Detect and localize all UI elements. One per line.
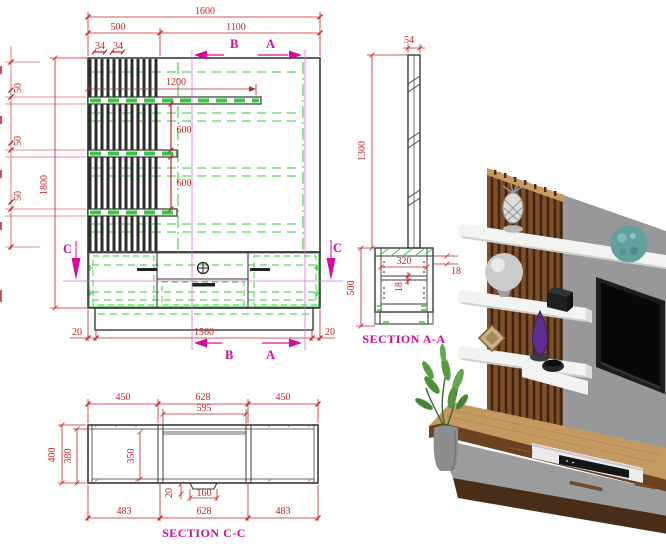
section-aa-title: SECTION A-A — [362, 332, 445, 346]
dim-320: 320 — [397, 256, 412, 267]
section-cc-title: SECTION C-C — [162, 526, 246, 540]
dim-50-c: 50 — [13, 191, 24, 201]
section-c-arrow-left — [72, 258, 81, 280]
dim-1560: 1560 — [194, 327, 214, 338]
front-elevation-view: 1600 500 1100 34 34 1200 600 600 1800 50… — [1, 6, 343, 362]
dim-380: 380 — [63, 449, 74, 464]
drawing-canvas: 1600 500 1100 34 34 1200 600 600 1800 50… — [0, 0, 666, 559]
dim-20-handle: 20 — [164, 488, 175, 498]
dim-628-top: 628 — [196, 392, 211, 403]
dim-34-b: 34 — [113, 41, 123, 52]
dim-54: 54 — [404, 35, 414, 46]
aa-dimensions — [356, 44, 458, 329]
dim-34-a: 34 — [95, 41, 105, 52]
dim-350: 350 — [126, 449, 137, 464]
right-door-handle — [250, 268, 270, 271]
section-c-arrow-right — [327, 258, 336, 280]
dim-400: 400 — [47, 448, 58, 463]
dim-628-bottom: 628 — [197, 506, 212, 517]
mark-a-bottom: A — [266, 348, 275, 362]
cad-drawing-sheet: 1600 500 1100 34 34 1200 600 600 1800 50… — [0, 0, 666, 559]
render-3d — [414, 168, 666, 534]
mark-b-top: B — [230, 37, 238, 51]
dim-500-aa: 500 — [346, 281, 357, 296]
mark-c-right: C — [333, 241, 342, 255]
dim-500: 500 — [111, 22, 126, 33]
dim-450-l: 450 — [116, 392, 131, 403]
dim-595: 595 — [197, 403, 212, 414]
dim-483-l: 483 — [117, 506, 132, 517]
mark-b-bottom: B — [225, 348, 233, 362]
dim-600-b: 600 — [177, 178, 192, 189]
dim-1600: 1600 — [195, 6, 215, 17]
dim-1100: 1100 — [226, 22, 246, 33]
dim-18-top: 18 — [451, 266, 461, 277]
cc-outline — [88, 425, 318, 489]
cc-dimensions — [58, 399, 321, 521]
dim-600-a: 600 — [177, 125, 192, 136]
left-door-handle — [137, 268, 157, 271]
dim-160: 160 — [197, 488, 212, 499]
section-a-arrow-bottom — [289, 339, 302, 348]
teal-sphere — [611, 226, 648, 263]
black-bowl — [542, 360, 564, 372]
mark-a-top: A — [266, 37, 275, 51]
dim-1800: 1800 — [39, 175, 50, 195]
dim-1200: 1200 — [166, 77, 186, 88]
mark-c-left: C — [63, 242, 72, 256]
dim-450-r: 450 — [276, 392, 291, 403]
dim-50-a: 50 — [13, 83, 24, 93]
drawer-handle — [192, 283, 215, 287]
dim-50-b: 50 — [13, 136, 24, 146]
section-cc-view: 450 628 450 595 400 380 350 20 160 483 6… — [47, 392, 321, 540]
dim-20-right: 20 — [325, 327, 335, 338]
dim-483-r: 483 — [276, 506, 291, 517]
dim-1300: 1300 — [357, 141, 368, 161]
arrow-1200 — [249, 86, 256, 92]
section-cut-marks: B A B A C C — [63, 37, 343, 362]
section-b-arrow-bottom — [194, 339, 207, 348]
section-aa-view: 54 1300 500 320 18 18 SECTION A-A — [346, 35, 461, 346]
dim-18-shelf: 18 — [394, 282, 405, 292]
dim-20-left: 20 — [72, 327, 82, 338]
